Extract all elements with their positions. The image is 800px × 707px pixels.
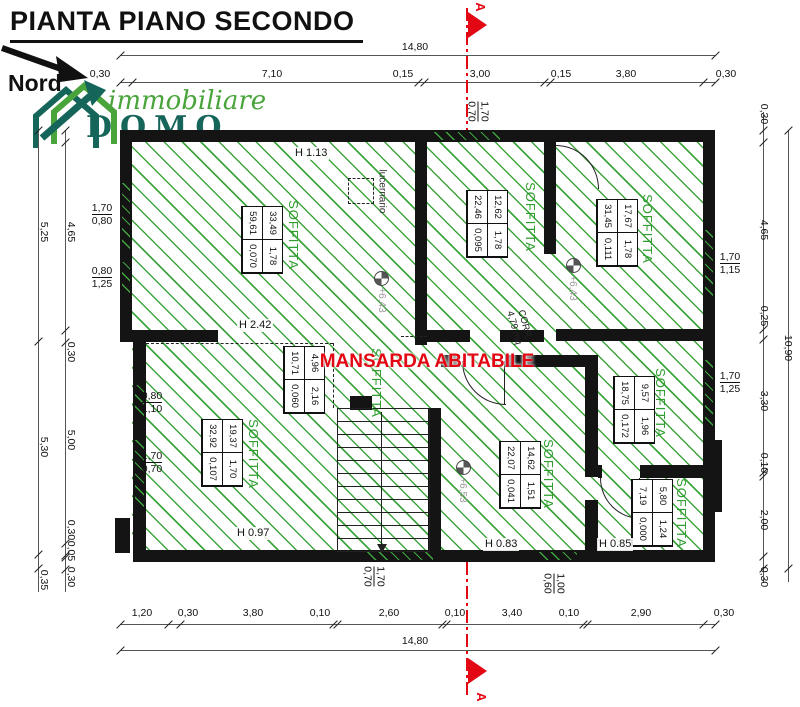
room-label: SOFFITTA: [286, 200, 300, 270]
level-label: +6,43: [566, 271, 578, 305]
room-table: 33,491,7859,610,070: [241, 206, 283, 274]
dim-label: 0,30: [758, 97, 770, 131]
dim-label: 0,30: [707, 607, 741, 619]
dim-label: 2,00: [758, 503, 770, 537]
room-table: 12,621,7822,460,095: [466, 190, 508, 258]
wall: [120, 130, 715, 142]
window-dim: 1,701,25: [715, 370, 745, 395]
floor-plan: PIANTA PIANO SECONDO Nord immobiliare DO…: [0, 0, 800, 707]
dim-label: 4,65: [65, 215, 77, 249]
dim-label: 3,80: [236, 607, 270, 619]
wall: [598, 465, 602, 478]
dim-label: 0,30: [65, 560, 77, 594]
skylight-symbol: [348, 178, 374, 204]
room-label: SOFFITTA: [674, 478, 688, 548]
window: [537, 550, 577, 562]
height-label: H 2.42: [237, 319, 273, 332]
dim-label: 5,30: [38, 430, 50, 464]
level-label: +6,53: [456, 473, 468, 507]
window-dim: 1,700,70: [362, 562, 387, 592]
dashed-opening: [401, 336, 427, 337]
dim-label: 3,40: [495, 607, 529, 619]
room-table: 9,571,9618,750,172: [613, 376, 655, 444]
room-label: SOFFITTA: [523, 182, 537, 252]
dim-label: 1,20: [125, 607, 159, 619]
section-marker-label: A: [473, 0, 487, 15]
room-table: 19,371,7032,920,107: [201, 419, 243, 487]
dim-label: 0,30: [709, 68, 743, 80]
height-label: H 0.97: [235, 527, 271, 540]
dim-label: 0,25: [758, 299, 770, 333]
wall: [415, 142, 427, 345]
height-label: H 0.85: [597, 538, 633, 551]
wall: [544, 142, 556, 254]
dim-label: 0,30: [83, 68, 117, 80]
stair-arrow-icon: [377, 544, 387, 553]
window-dim: 0,801,10: [137, 390, 167, 415]
wall: [427, 330, 470, 342]
window-dim: 1,700,70: [466, 97, 491, 127]
wall: [640, 465, 703, 478]
window-dim: 1,701,15: [715, 251, 745, 276]
window: [432, 130, 500, 142]
window-dim: 1,000,60: [542, 569, 567, 599]
room-table: 14,621,5122,070,041: [499, 441, 541, 509]
height-label: H 1.13: [293, 147, 329, 160]
staircase: [337, 408, 430, 552]
dim-label: 14,80: [398, 41, 432, 53]
wall-pillar: [115, 518, 130, 553]
dim-label: 10,90: [782, 331, 794, 365]
room-table: 5,801,247,190,000: [631, 479, 673, 547]
dim-label: 3,80: [609, 68, 643, 80]
wall: [556, 329, 703, 341]
dim-label: 0,30: [171, 607, 205, 619]
dim-label: 0,10: [552, 607, 586, 619]
dim-label: 7,10: [255, 68, 289, 80]
dim-label: 0,30: [65, 335, 77, 369]
wall: [585, 355, 598, 477]
dim-label: 0,35: [38, 563, 50, 597]
window-dim: 0,801,25: [87, 265, 117, 290]
wall-pilaster: [703, 440, 722, 512]
dim-label: 4,65: [758, 213, 770, 247]
dim-label: 5,00: [65, 423, 77, 457]
window-dim: 1,700,80: [87, 202, 117, 227]
window: [703, 360, 715, 428]
room-label: SOFFITTA: [653, 368, 667, 438]
dim-label: 2,90: [624, 607, 658, 619]
wall: [120, 330, 218, 342]
section-marker-icon: [468, 12, 487, 38]
dim-label: 0,30: [758, 560, 770, 594]
window: [703, 230, 715, 298]
page-title: PIANTA PIANO SECONDO: [10, 6, 363, 43]
mansarda-label: MANSARDA ABITABILE: [314, 351, 540, 373]
window: [120, 183, 132, 251]
dim-label: 0,15: [544, 68, 578, 80]
dim-label: 0,15: [386, 68, 420, 80]
dim-label: 14,80: [398, 635, 432, 647]
skylight-label: lucernario: [377, 164, 388, 220]
height-label: H 0.83: [483, 538, 519, 551]
dim-label: 5,25: [38, 215, 50, 249]
dim-label: 3,30: [758, 384, 770, 418]
window-dim: 1,700,70: [137, 450, 167, 475]
section-marker-icon: [468, 658, 487, 684]
dim-label: 3,00: [463, 68, 497, 80]
dim-label: 0,10: [303, 607, 337, 619]
room-label: SOFFITTA: [640, 194, 654, 264]
dim-label: 2,60: [372, 607, 406, 619]
window: [120, 262, 132, 295]
room-label: SOFFITTA: [541, 439, 555, 509]
dashed-height-line: [146, 343, 333, 344]
dim-label: 0,10: [758, 446, 770, 480]
stair-direction-line: [381, 412, 382, 548]
section-marker-label: A: [474, 689, 488, 705]
room-label: SOFFITTA: [246, 419, 260, 489]
level-label: +6,43: [375, 283, 387, 317]
room-table: 17,671,7831,450,111: [596, 199, 638, 267]
